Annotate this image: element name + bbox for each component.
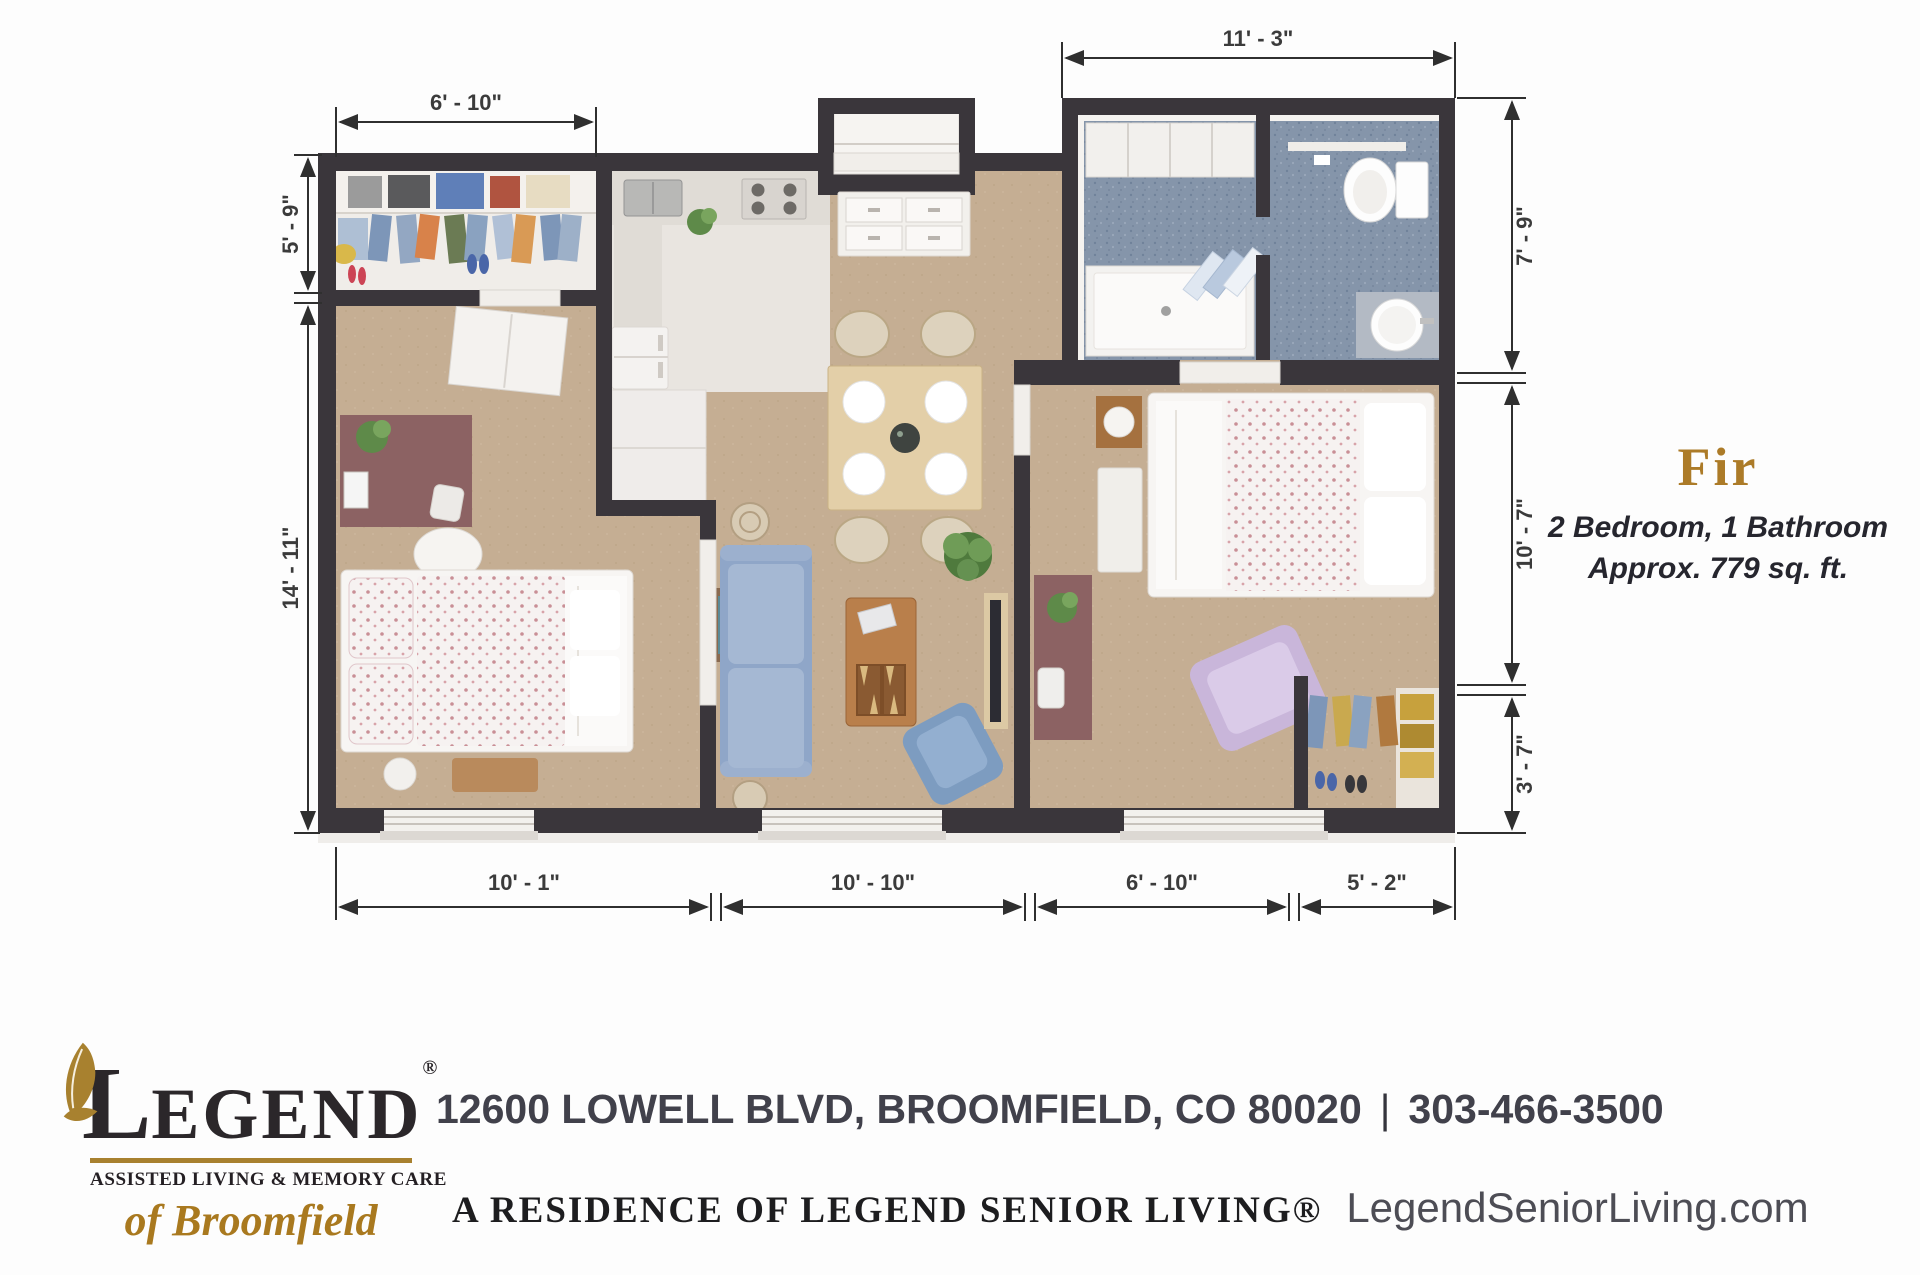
dim-bedroom1-depth: 14' - 11"	[278, 527, 303, 610]
storage-box	[526, 175, 570, 208]
street-address: 12600 LOWELL BLVD, BROOMFIELD, CO 80020	[436, 1086, 1362, 1133]
lamp	[1104, 407, 1134, 437]
centerpiece-bowl	[890, 423, 920, 453]
stove	[742, 179, 806, 219]
window	[762, 810, 942, 831]
flip-flops	[358, 267, 366, 285]
bathroom-vanity	[1356, 292, 1439, 358]
picture-frame	[344, 472, 368, 508]
dim-closet2-width: 5' - 2"	[1347, 870, 1407, 895]
dim-closet-width: 6' - 10"	[430, 90, 502, 115]
storage-box	[1400, 752, 1434, 778]
bench	[1098, 468, 1142, 572]
pillow	[1364, 403, 1426, 491]
address-line: 12600 LOWELL BLVD, BROOMFIELD, CO 80020 …	[436, 1086, 1664, 1133]
shoes	[1345, 775, 1355, 793]
flip-flops	[348, 265, 356, 283]
dining-chair	[921, 311, 975, 357]
logo-tagline: ASSISTED LIVING & MEMORY CARE	[90, 1169, 412, 1191]
pillow	[349, 578, 413, 658]
bath-shelf	[1288, 142, 1406, 151]
bed-2	[1148, 393, 1434, 597]
dim-bedroom1-width: 10' - 1"	[488, 870, 560, 895]
storage-box	[348, 176, 382, 208]
entry-alcove	[818, 98, 975, 256]
phone-number: 303-466-3500	[1408, 1086, 1663, 1133]
entry-door	[834, 153, 959, 171]
dining-chair	[835, 517, 889, 563]
unit-specs: 2 Bedroom, 1 Bathroom	[1518, 508, 1918, 549]
plate	[925, 381, 967, 423]
unit-area: Approx. 779 sq. ft.	[1518, 549, 1918, 590]
storage-box	[490, 176, 520, 208]
bedroom1-door	[700, 540, 716, 705]
registered-mark: ®	[422, 1057, 437, 1079]
gold-leaf-icon	[52, 1040, 130, 1132]
dim-bathroom-depth: 7' - 9"	[1512, 206, 1537, 266]
desk-chair	[1038, 668, 1064, 708]
storage-box	[1400, 694, 1434, 720]
duvet	[417, 576, 565, 746]
shoes	[467, 254, 477, 274]
window	[384, 810, 534, 831]
dim-closet-depth: 5' - 9"	[278, 194, 303, 254]
bedroom2-door	[1014, 385, 1030, 455]
bathroom-door	[1180, 362, 1280, 383]
shoes	[1357, 775, 1367, 793]
unit-info: Fir 2 Bedroom, 1 Bathroom Approx. 779 sq…	[1518, 436, 1918, 589]
plate	[925, 453, 967, 495]
bed-1	[341, 570, 633, 752]
address-separator: |	[1380, 1086, 1391, 1133]
windows	[318, 810, 1455, 843]
storage-box	[388, 175, 430, 208]
wardrobe	[448, 306, 568, 395]
logo-location: of Broomfield	[90, 1195, 412, 1246]
side-table	[731, 503, 769, 541]
legend-logo: LEGEND® ASSISTED LIVING & MEMORY CARE of…	[44, 1052, 428, 1246]
logo-wordmark: LEGEND®	[44, 1052, 428, 1156]
dim-living-width: 10' - 10"	[831, 870, 915, 895]
toilet	[1344, 158, 1428, 222]
dim-closet2-depth: 3' - 7"	[1512, 734, 1537, 794]
coffee-table	[846, 598, 916, 726]
flyer-page: 6' - 10" 11' - 3" 5' - 9" 14' - 11" 7' -…	[0, 0, 1920, 1275]
sofa	[720, 545, 812, 777]
pillow	[349, 664, 413, 744]
toiletries	[1314, 155, 1330, 165]
dim-bedroom2-width: 6' - 10"	[1126, 870, 1198, 895]
residence-text: A RESIDENCE OF LEGEND SENIOR LIVING®	[452, 1189, 1322, 1232]
unit-name: Fir	[1518, 436, 1918, 498]
storage-box	[1400, 724, 1434, 748]
bench	[452, 758, 538, 792]
blanket	[1156, 401, 1222, 589]
pillow	[570, 590, 620, 650]
kitchen-counter-side	[614, 225, 662, 327]
closet-door	[480, 290, 560, 306]
desk-chair	[429, 484, 464, 523]
plate	[843, 453, 885, 495]
website-url: LegendSeniorLiving.com	[1346, 1184, 1808, 1232]
plate	[843, 381, 885, 423]
dim-bathroom-width: 11' - 3"	[1223, 26, 1294, 51]
pillow	[1364, 497, 1426, 585]
logo-letters: EGEND	[151, 1074, 422, 1154]
shoes	[1315, 771, 1325, 789]
window	[1124, 810, 1324, 831]
shoes	[479, 254, 489, 274]
stool	[384, 758, 416, 790]
duvet	[1226, 399, 1360, 591]
pillow	[570, 656, 620, 716]
faucet	[1420, 318, 1434, 324]
residence-line: A RESIDENCE OF LEGEND SENIOR LIVING® Leg…	[452, 1184, 1809, 1232]
storage-box	[436, 173, 484, 209]
dining-chair	[835, 311, 889, 357]
shoes	[1327, 773, 1337, 791]
tv	[990, 600, 1001, 722]
